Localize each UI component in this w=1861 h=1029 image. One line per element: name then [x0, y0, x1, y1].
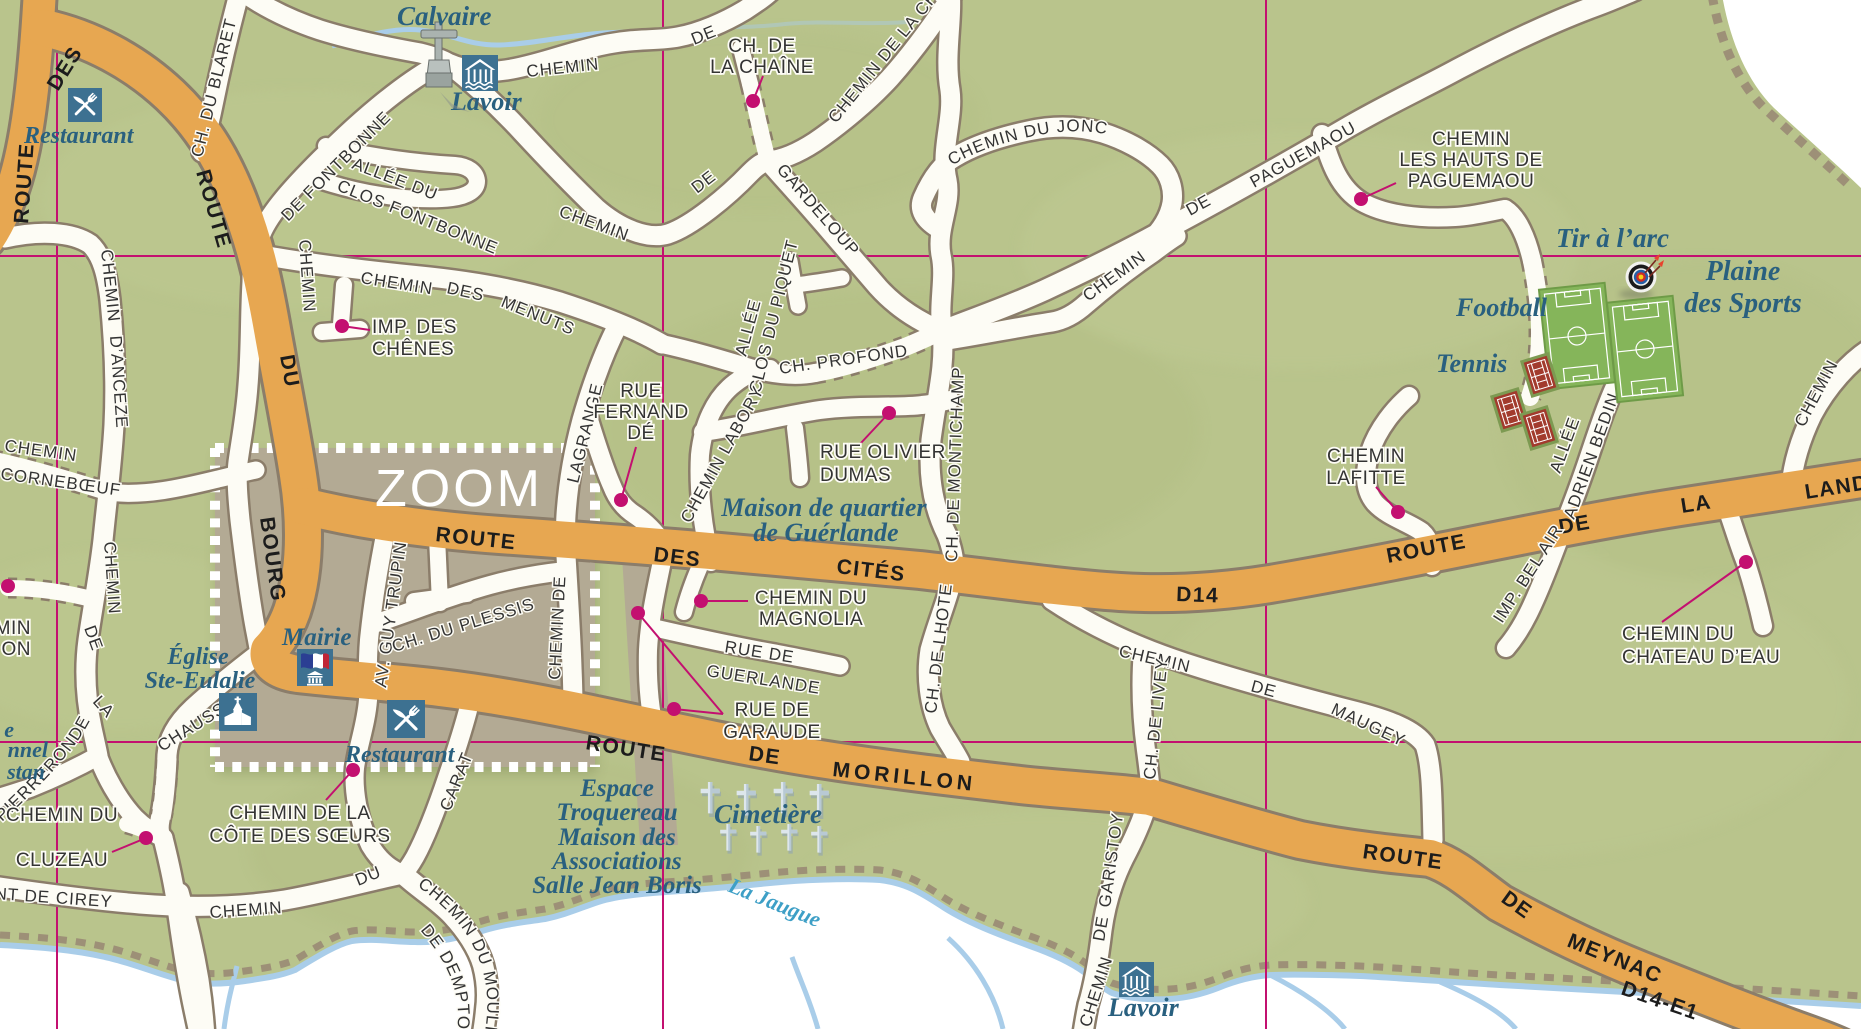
svg-text:LES HAUTS DE: LES HAUTS DE — [1399, 150, 1542, 171]
svg-text:CHEMIN: CHEMIN — [1432, 129, 1510, 150]
svg-text:Football: Football — [1455, 293, 1548, 322]
svg-text:LA CHAÎNE: LA CHAÎNE — [710, 56, 814, 78]
svg-text:CHEMIN DU: CHEMIN DU — [755, 588, 867, 609]
svg-text:CLUZEAU: CLUZEAU — [16, 850, 108, 871]
svg-text:ON: ON — [2, 639, 32, 660]
svg-text:DUMAS: DUMAS — [820, 465, 891, 486]
svg-text:CHEMIN DE LA: CHEMIN DE LA — [229, 803, 370, 824]
svg-text:RUE DE: RUE DE — [735, 700, 810, 721]
svg-text:IMP. DES: IMP. DES — [372, 317, 457, 338]
svg-text:CHEMIN DU: CHEMIN DU — [1622, 624, 1734, 645]
svg-text:D14: D14 — [1176, 583, 1220, 607]
svg-text:Ste-Eulalie: Ste-Eulalie — [145, 668, 256, 694]
svg-text:des Sports: des Sports — [1684, 288, 1802, 319]
svg-text:GARAUDE: GARAUDE — [723, 722, 820, 743]
svg-text:RUE: RUE — [620, 381, 662, 402]
svg-text:Cimetière: Cimetière — [714, 799, 822, 829]
svg-text:CHEMIN DU: CHEMIN DU — [6, 805, 118, 826]
svg-text:Calvaire: Calvaire — [397, 1, 492, 31]
svg-text:Troquereau: Troquereau — [556, 799, 677, 826]
svg-text:Mairie: Mairie — [281, 624, 351, 651]
svg-text:Lavoir: Lavoir — [1107, 993, 1180, 1022]
svg-text:Lavoir: Lavoir — [450, 87, 523, 116]
svg-text:DÉ: DÉ — [627, 423, 654, 444]
svg-text:Maison des: Maison des — [557, 824, 675, 851]
svg-text:Salle Jean Boris: Salle Jean Boris — [532, 872, 701, 899]
svg-text:Plaine: Plaine — [1705, 256, 1781, 287]
svg-text:ZOOM: ZOOM — [375, 460, 543, 518]
svg-text:CÔTE DES SŒURS: CÔTE DES SŒURS — [209, 825, 390, 847]
svg-text:Restaurant: Restaurant — [23, 123, 135, 149]
svg-text:CHATEAU D’EAU: CHATEAU D’EAU — [1622, 647, 1780, 668]
svg-text:LAFITTE: LAFITTE — [1326, 468, 1406, 489]
svg-text:CHÊNES: CHÊNES — [372, 338, 454, 360]
svg-text:Espace: Espace — [579, 775, 654, 802]
svg-text:Tennis: Tennis — [1436, 349, 1507, 378]
svg-text:stan: stan — [6, 759, 45, 784]
svg-text:MIN: MIN — [0, 618, 31, 639]
svg-text:CHEMIN: CHEMIN — [1327, 446, 1405, 467]
svg-text:Église: Église — [166, 644, 229, 670]
svg-text:Restaurant: Restaurant — [344, 742, 456, 768]
svg-text:CH. DE: CH. DE — [728, 36, 795, 57]
svg-text:RUE OLIVIER: RUE OLIVIER — [820, 442, 946, 463]
svg-text:de Guérlande: de Guérlande — [753, 518, 898, 547]
svg-text:MAGNOLIA: MAGNOLIA — [759, 609, 863, 630]
svg-text:LA: LA — [1679, 490, 1713, 518]
svg-text:FERNAND: FERNAND — [593, 402, 688, 423]
svg-text:DE: DE — [747, 742, 782, 769]
svg-text:PAGUEMAOU: PAGUEMAOU — [1408, 171, 1535, 192]
svg-text:Associations: Associations — [550, 848, 681, 875]
svg-text:Tir à l’arc: Tir à l’arc — [1556, 223, 1669, 253]
